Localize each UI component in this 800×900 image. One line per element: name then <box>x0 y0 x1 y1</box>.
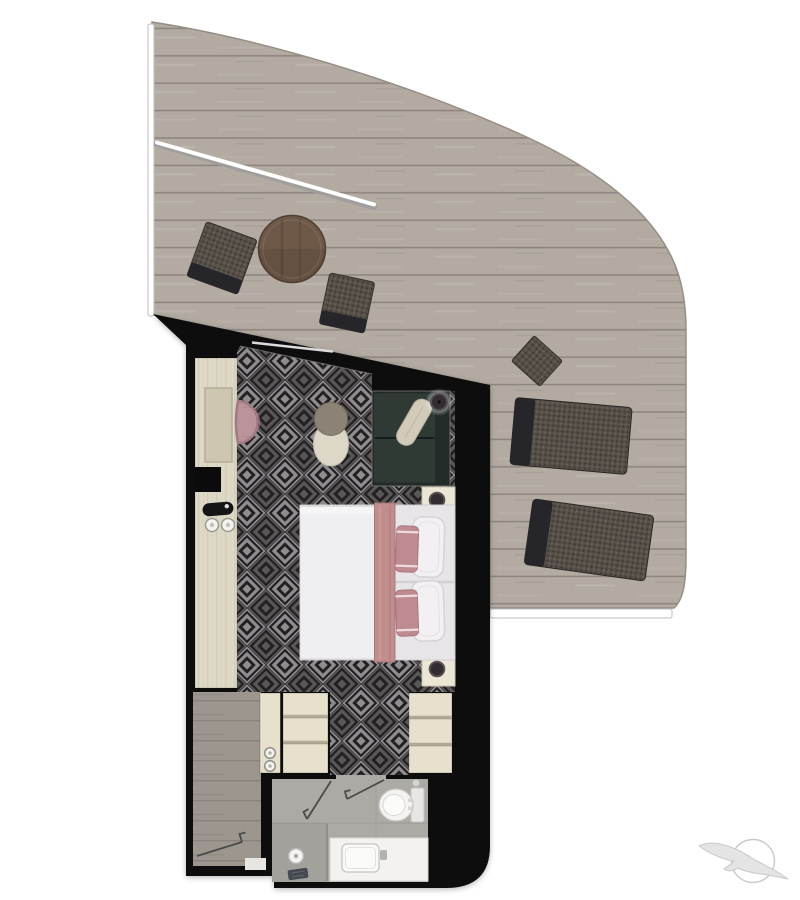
sun-lounger-1 <box>510 398 632 475</box>
balcony-bottom-railing <box>490 609 672 618</box>
wardrobe-knob-2-dot <box>268 764 272 768</box>
round-deck-table <box>259 216 326 283</box>
wardrobe-shelves-right <box>409 693 452 773</box>
flush-button <box>413 780 420 787</box>
wardrobe-knob-1-dot <box>268 751 272 755</box>
seabird-logo <box>699 840 788 883</box>
corner-lamp <box>425 388 453 416</box>
desk-vanity <box>195 358 237 688</box>
floor-plan-canvas <box>0 0 800 900</box>
wardrobe-shelves-left <box>283 693 328 773</box>
faucet <box>380 850 387 860</box>
vanity-sink <box>330 838 428 881</box>
entry-hall <box>193 692 266 870</box>
desk-panel <box>205 388 232 462</box>
cup-1-center <box>210 523 214 527</box>
shower-head-dot <box>294 854 298 858</box>
bathroom <box>272 772 428 882</box>
cup-2-center <box>226 523 230 527</box>
floor-plan-page <box>0 0 800 900</box>
balcony-left-railing <box>148 24 154 316</box>
hall-floor <box>193 692 261 866</box>
double-bed <box>300 503 455 662</box>
pillow-pink-2 <box>395 590 419 637</box>
entry-threshold <box>245 858 266 870</box>
nightstand-lamp <box>430 662 445 677</box>
ottoman <box>314 403 349 467</box>
duvet-fold <box>300 507 377 514</box>
pillow-pink-1 <box>395 526 419 573</box>
bed-duvet <box>300 507 377 659</box>
seat-hinge <box>408 799 412 803</box>
desk-knee-space <box>195 467 221 492</box>
seat-hinge <box>408 807 412 811</box>
bed-runner <box>375 503 396 662</box>
